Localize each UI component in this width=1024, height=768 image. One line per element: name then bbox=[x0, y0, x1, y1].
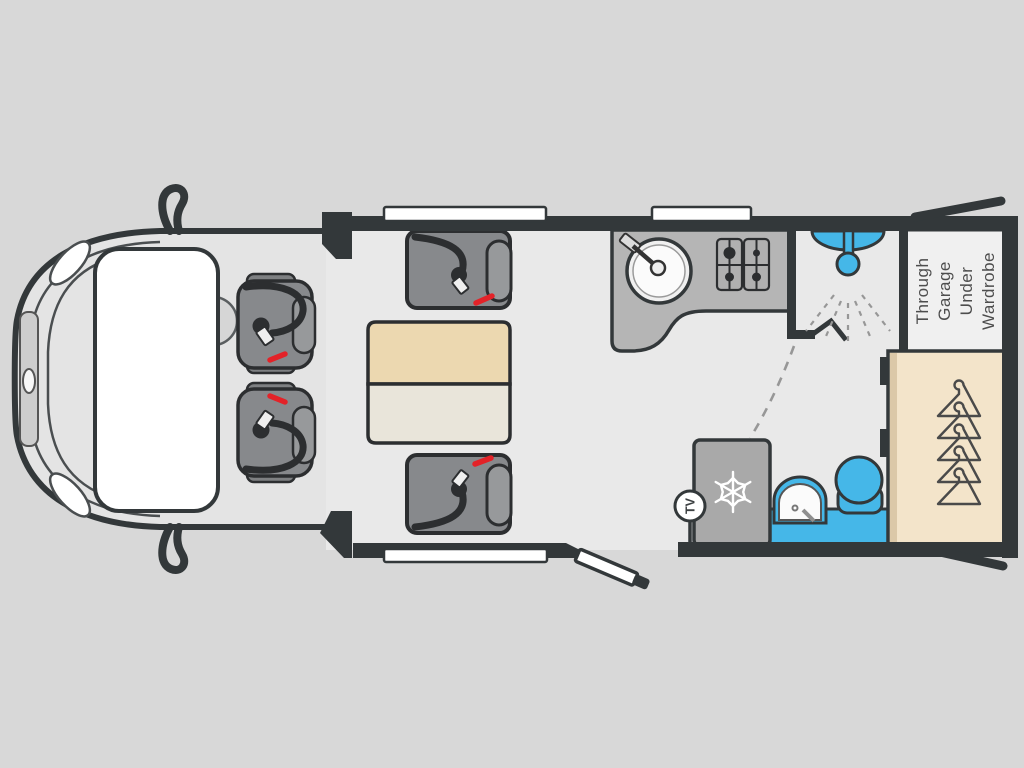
garage-label-line: Wardrobe bbox=[979, 252, 998, 330]
hob-icon bbox=[717, 239, 769, 290]
garage-label-box: Through Garage Under Wardrobe bbox=[899, 229, 1007, 353]
wardrobe bbox=[880, 351, 1008, 547]
burner bbox=[752, 273, 761, 282]
burner bbox=[753, 250, 760, 257]
dinette-table-extension bbox=[368, 384, 510, 443]
dinette-seat-front bbox=[407, 231, 511, 308]
rear-wall bbox=[1002, 216, 1018, 558]
motorhome-floorplan: TV Through Garage Under Wardrobe bbox=[0, 0, 1024, 768]
toilet-icon bbox=[836, 457, 882, 503]
washbasin-bowl bbox=[779, 484, 821, 520]
window bbox=[384, 207, 546, 221]
grille-badge bbox=[23, 369, 35, 393]
dinette-table bbox=[368, 322, 510, 384]
burner bbox=[724, 247, 736, 259]
window bbox=[384, 549, 547, 562]
floorplan-canvas: TV Through Garage Under Wardrobe bbox=[0, 0, 1024, 768]
cab-seat-passenger bbox=[238, 383, 315, 482]
wardrobe-wall-stub bbox=[880, 357, 887, 385]
windscreen bbox=[95, 249, 218, 511]
wardrobe-edge bbox=[890, 353, 897, 545]
tv-label: TV bbox=[684, 497, 698, 514]
dinette-seat-rear bbox=[407, 455, 511, 533]
burner bbox=[725, 273, 734, 282]
wardrobe-wall-stub bbox=[880, 429, 887, 457]
cab-seat-driver bbox=[238, 274, 315, 373]
garage-label-line: Through bbox=[913, 258, 932, 325]
shower-head-icon bbox=[837, 253, 859, 275]
shower-stem bbox=[844, 231, 853, 255]
seat-headrest bbox=[487, 241, 511, 301]
window bbox=[652, 207, 751, 221]
tap-base bbox=[651, 261, 665, 275]
shower-wall bbox=[787, 330, 815, 339]
garage-wall bbox=[899, 229, 908, 353]
seat-headrest bbox=[487, 465, 511, 525]
garage-label-line: Garage bbox=[935, 261, 954, 321]
shower-wall bbox=[787, 229, 796, 335]
garage-label-line: Under bbox=[957, 267, 976, 316]
